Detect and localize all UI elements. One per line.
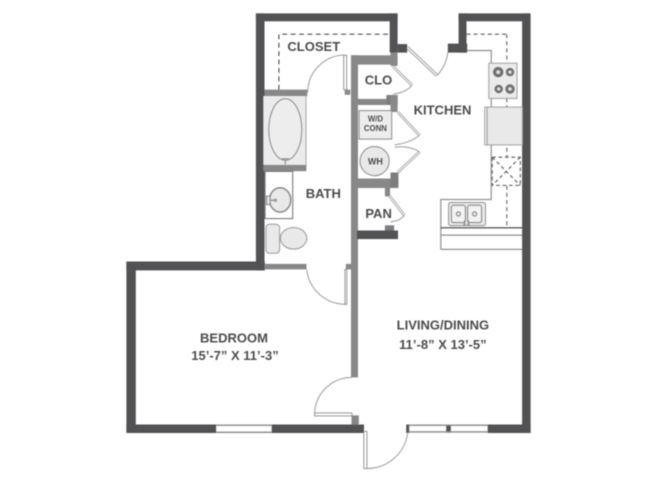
svg-text:CLOSET: CLOSET [287,39,340,54]
svg-text:PAN: PAN [365,206,391,221]
svg-text:W/D: W/D [368,115,384,124]
svg-text:WH: WH [368,156,383,166]
svg-text:CLO: CLO [365,73,392,88]
svg-text:LIVING/DINING: LIVING/DINING [397,318,489,333]
svg-text:15’-7” X 11’-3”: 15’-7” X 11’-3” [191,348,278,363]
svg-text:BEDROOM: BEDROOM [200,331,268,346]
svg-text:CONN: CONN [364,124,387,133]
svg-text:KITCHEN: KITCHEN [414,103,472,118]
svg-text:11’-8” X 13’-5”: 11’-8” X 13’-5” [399,337,486,352]
svg-text:BATH: BATH [306,186,341,201]
